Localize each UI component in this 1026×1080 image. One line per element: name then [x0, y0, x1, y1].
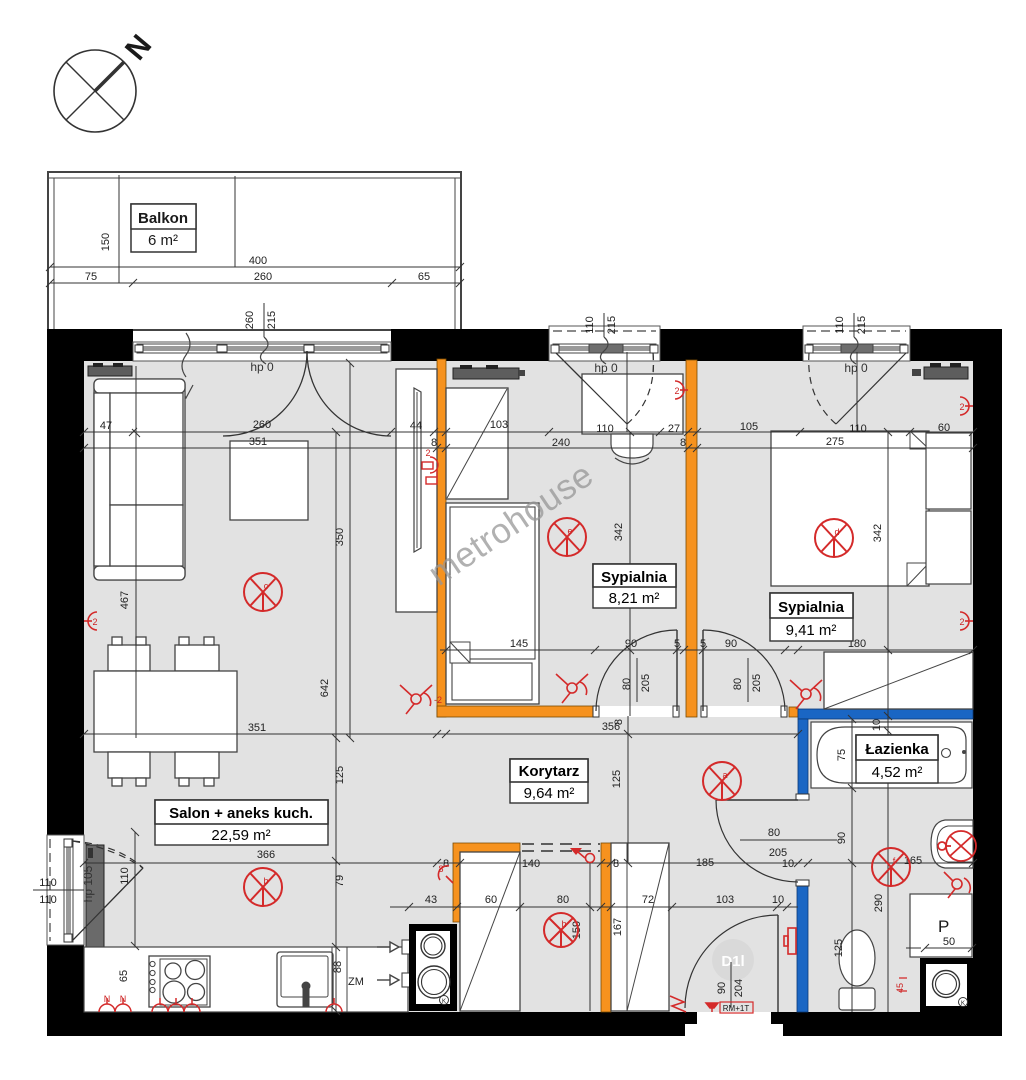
svg-text:hp 0: hp 0 [594, 361, 618, 375]
svg-text:140: 140 [522, 858, 540, 870]
svg-text:5: 5 [700, 638, 706, 650]
svg-text:b: b [263, 876, 268, 886]
svg-text:2: 2 [425, 448, 430, 458]
svg-text:205: 205 [751, 674, 763, 692]
svg-text:h: h [561, 919, 566, 929]
svg-text:hp 105: hp 105 [81, 865, 95, 902]
svg-text:4,52 m²: 4,52 m² [872, 764, 923, 781]
svg-text:Sypialnia: Sypialnia [601, 569, 668, 586]
svg-text:150: 150 [100, 233, 112, 251]
svg-text:290: 290 [873, 894, 885, 912]
svg-text:145: 145 [510, 638, 528, 650]
svg-text:260: 260 [254, 271, 272, 283]
svg-text:8: 8 [443, 858, 449, 870]
svg-text:N: N [120, 994, 127, 1004]
svg-text:75: 75 [85, 271, 97, 283]
svg-text:-2: -2 [434, 695, 442, 705]
svg-text:110: 110 [596, 423, 614, 435]
svg-text:400: 400 [249, 255, 267, 267]
svg-text:d: d [834, 527, 839, 537]
svg-text:90: 90 [716, 982, 728, 994]
svg-text:8: 8 [613, 719, 625, 725]
svg-text:125: 125 [611, 770, 623, 788]
svg-text:2: 2 [674, 386, 679, 396]
svg-text:27: 27 [668, 423, 680, 435]
svg-text:351: 351 [248, 722, 266, 734]
svg-text:P: P [938, 917, 949, 936]
svg-text:110: 110 [834, 316, 846, 334]
svg-text:60: 60 [938, 422, 950, 434]
svg-text:240: 240 [552, 437, 570, 449]
svg-text:D1l: D1l [721, 953, 744, 970]
svg-text:260: 260 [244, 311, 256, 329]
svg-text:90: 90 [725, 638, 737, 650]
svg-text:44: 44 [410, 420, 422, 432]
svg-text:110: 110 [39, 894, 57, 906]
svg-text:205: 205 [640, 674, 652, 692]
svg-text:103: 103 [490, 419, 508, 431]
svg-text:a: a [722, 770, 727, 780]
svg-text:215: 215 [606, 316, 618, 334]
svg-text:N: N [104, 994, 111, 1004]
svg-text:43: 43 [425, 894, 437, 906]
svg-text:8: 8 [431, 437, 437, 449]
svg-text:2: 2 [92, 617, 97, 627]
svg-text:215: 215 [266, 311, 278, 329]
svg-text:110: 110 [849, 423, 867, 435]
svg-text:c: c [264, 581, 269, 591]
svg-text:hp 0: hp 0 [844, 361, 868, 375]
svg-text:80: 80 [557, 894, 569, 906]
svg-text:88: 88 [332, 961, 344, 973]
svg-text:65: 65 [418, 271, 430, 283]
svg-text:79: 79 [334, 875, 346, 887]
svg-text:10: 10 [782, 858, 794, 870]
svg-text:2: 2 [959, 617, 964, 627]
svg-text:9,64 m²: 9,64 m² [524, 785, 575, 802]
svg-text:125: 125 [833, 939, 845, 957]
svg-text:215: 215 [856, 316, 868, 334]
svg-text:467: 467 [119, 591, 131, 609]
svg-text:60: 60 [485, 894, 497, 906]
svg-text:90: 90 [625, 638, 637, 650]
svg-text:65: 65 [118, 970, 130, 982]
svg-text:125: 125 [334, 766, 346, 784]
svg-text:103: 103 [716, 894, 734, 906]
svg-text:hp 0: hp 0 [250, 360, 274, 374]
svg-text:Salon + aneks kuch.: Salon + aneks kuch. [169, 805, 313, 822]
svg-text:8: 8 [438, 864, 443, 874]
svg-text:K: K [961, 1001, 965, 1007]
svg-text:275: 275 [826, 436, 844, 448]
svg-text:80: 80 [621, 678, 633, 690]
svg-text:8,21 m²: 8,21 m² [609, 590, 660, 607]
svg-text:110: 110 [584, 316, 596, 334]
svg-text:47: 47 [100, 420, 112, 432]
svg-text:ZM: ZM [348, 976, 364, 988]
svg-text:342: 342 [613, 523, 625, 541]
svg-text:642: 642 [319, 679, 331, 697]
svg-text:8: 8 [613, 858, 619, 870]
svg-text:167: 167 [612, 918, 624, 936]
svg-text:351: 351 [249, 436, 267, 448]
svg-text:K: K [442, 999, 446, 1005]
svg-text:185: 185 [696, 857, 714, 869]
svg-text:204: 204 [733, 979, 745, 997]
svg-text:90: 90 [836, 832, 848, 844]
svg-text:Łazienka: Łazienka [865, 741, 929, 758]
svg-text:RM+1T: RM+1T [723, 1004, 750, 1013]
svg-text:80: 80 [732, 678, 744, 690]
svg-text:9,41 m²: 9,41 m² [786, 622, 837, 639]
svg-text:366: 366 [257, 849, 275, 861]
svg-text:260: 260 [253, 419, 271, 431]
svg-text:8: 8 [680, 437, 686, 449]
svg-text:80: 80 [768, 827, 780, 839]
svg-text:10: 10 [871, 719, 883, 731]
svg-text:e: e [567, 526, 572, 536]
svg-text:22,59 m²: 22,59 m² [211, 827, 270, 844]
svg-text:Balkon: Balkon [138, 210, 188, 227]
svg-text:342: 342 [872, 524, 884, 542]
svg-text:105: 105 [740, 421, 758, 433]
svg-text:110: 110 [39, 877, 57, 889]
svg-text:50: 50 [943, 936, 955, 948]
svg-text:Korytarz: Korytarz [519, 763, 580, 780]
svg-text:6 m²: 6 m² [148, 232, 178, 249]
svg-text:2: 2 [959, 402, 964, 412]
svg-text:Sypialnia: Sypialnia [778, 599, 845, 616]
svg-text:10: 10 [772, 894, 784, 906]
svg-text:75: 75 [836, 749, 848, 761]
svg-text:72: 72 [642, 894, 654, 906]
svg-text:5: 5 [674, 638, 680, 650]
